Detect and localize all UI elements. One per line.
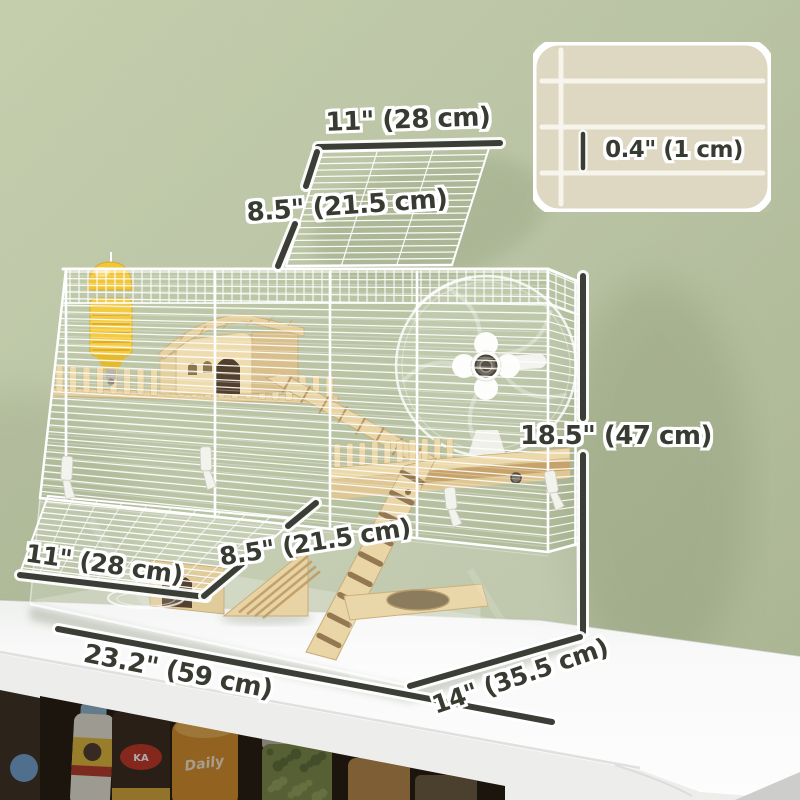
dim-line-lid-width (318, 143, 500, 147)
dim-label-wire-spacing: 0.4" (1 cm) (605, 137, 743, 163)
house-door (216, 358, 240, 394)
sand-bath-hole (387, 590, 449, 610)
wire-spacing-inset (533, 42, 771, 212)
dim-label-lid-width: 11" (28 cm) (325, 102, 491, 138)
dim-label-height: 18.5" (47 cm) (520, 421, 712, 451)
hamster-cage-dimension-image: KA Daily (0, 0, 800, 800)
